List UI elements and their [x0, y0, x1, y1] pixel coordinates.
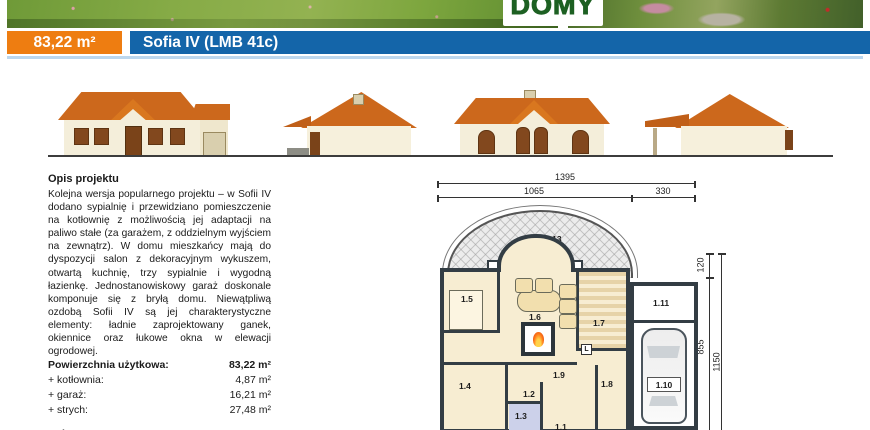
chimney: [353, 94, 364, 105]
arched-window: [516, 127, 530, 154]
elevation-front: [52, 88, 232, 158]
car-icon: [641, 328, 687, 424]
window: [74, 128, 89, 145]
table-row: + strych: 27,48 m²: [48, 402, 271, 417]
room-label-living: 1.6: [529, 312, 541, 322]
area-badge-text: 83,22 m²: [33, 34, 95, 52]
dim-total-width: 1395: [435, 172, 695, 182]
arched-window: [478, 130, 495, 154]
description-body: Kolejna wersja popularnego projektu – w …: [48, 188, 271, 358]
fireplace: [521, 322, 555, 356]
armchair: [515, 278, 533, 293]
ground-line: [48, 155, 833, 157]
fridge-box: L: [581, 344, 592, 355]
room-label-bedroom2: 1.4: [459, 381, 471, 391]
lawn-photo: [7, 0, 558, 28]
floor-plan: 1395 1065 330 120 855 1150 1.13: [435, 172, 735, 430]
wall: [307, 126, 411, 156]
room-label-kitchen: 1.7: [593, 318, 605, 328]
area-badge: 83,22 m²: [7, 31, 122, 54]
wall: [681, 126, 787, 156]
elevation-garden: [452, 90, 612, 158]
window: [170, 128, 185, 145]
table-row: Powierzchnia użytkowa: 83,22 m²: [48, 357, 271, 372]
garage-door: [203, 132, 226, 157]
description-heading: Opis projektu: [48, 173, 271, 185]
project-title-bar: Sofia IV (LMB 41c): [130, 31, 870, 54]
kitchen-floor: [579, 272, 626, 348]
catalog-page: DOMY 83,22 m² Sofia IV (LMB 41c): [0, 0, 870, 430]
domy-logo: DOMY: [503, 0, 603, 26]
domy-logo-text: DOMY: [511, 0, 596, 21]
elevation-side-right: [645, 94, 803, 158]
room-label-boiler: 1.11: [653, 298, 669, 308]
door: [125, 126, 142, 157]
table-row: + kotłownia: 4,87 m²: [48, 372, 271, 387]
fireplace-flame-icon: [533, 332, 544, 347]
dining-table: [517, 290, 561, 312]
project-title: Sofia IV (LMB 41c): [143, 34, 278, 52]
elevation-side-left: [283, 92, 431, 158]
dim-right-top: 120: [696, 257, 706, 272]
project-description: Opis projektu Kolejna wersja popularnego…: [48, 173, 271, 358]
arched-window: [534, 127, 548, 154]
sofa-seat: [559, 284, 577, 299]
areas-table: Powierzchnia użytkowa: 83,22 m² + kotłow…: [48, 357, 271, 430]
garage-roof: [190, 104, 230, 120]
window: [94, 128, 109, 145]
room-label-garage-box: 1.10: [647, 377, 681, 392]
dim-house-width: 1065: [437, 186, 631, 196]
room-label-bedroom3: 1.8: [601, 379, 613, 389]
room-label-bath: 1.3: [515, 411, 527, 421]
dim-right-total: 1150: [712, 352, 722, 371]
table-row: + garaż: 16,21 m²: [48, 387, 271, 402]
armchair: [535, 278, 553, 293]
table-row: Kubatura: 524,00 m³: [48, 426, 271, 430]
garden-photo: [568, 0, 863, 28]
title-underline: [7, 56, 863, 59]
roof: [675, 94, 789, 128]
room-label-garage: 1.10: [656, 380, 673, 390]
fridge-label: L: [584, 346, 588, 353]
dim-garage-width: 330: [631, 186, 695, 196]
room-label-entry: 1.1: [555, 422, 567, 430]
room-label-bedroom1: 1.5: [461, 294, 473, 304]
sofa-seat: [559, 299, 577, 314]
sofa-seat: [559, 314, 577, 329]
door: [310, 132, 320, 156]
room-label-hall: 1.2: [523, 389, 535, 399]
porch-column: [653, 128, 657, 156]
window: [148, 128, 163, 145]
room-label-corridor: 1.9: [553, 370, 565, 380]
arched-window: [572, 130, 589, 154]
